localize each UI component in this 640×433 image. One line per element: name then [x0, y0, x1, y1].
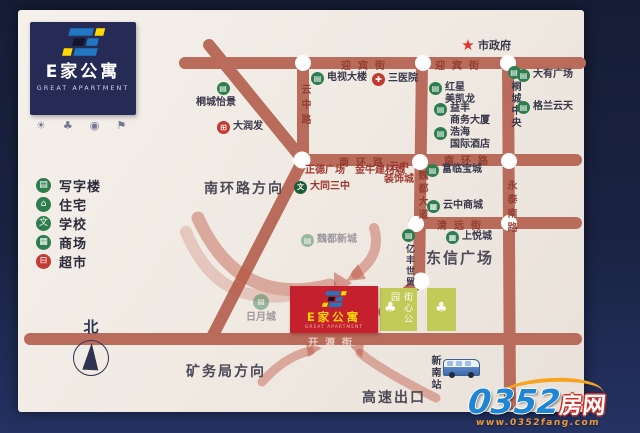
bus-icon — [443, 359, 480, 378]
poi-haohai-intl-hotel: ▤ 浩海 国际酒店 — [434, 127, 490, 151]
road-label-kaiyuan: 开源街 — [308, 334, 359, 349]
poi-gelan-yuntian: ▤ 格兰云天 — [517, 101, 573, 114]
supermarket-icon: ⊟ — [36, 254, 51, 269]
compass-needle-icon — [82, 343, 99, 371]
school-icon: 文 — [294, 181, 307, 194]
road-label-yunzhong: 云中路 — [297, 84, 312, 129]
mall-icon: ▦ — [36, 235, 51, 250]
project-marker-e-apartment: E家公寓 GREAT APARTMENT — [290, 286, 378, 333]
poi-fulin-baocheng: ▤ 富临宝城 — [426, 164, 482, 177]
direction-kuangwuju: 矿务局方向 — [186, 361, 266, 381]
legend-item-residence: ⌂ 住宅 — [36, 195, 101, 214]
poi-riyuecheng: ▤ 日月城 — [246, 294, 276, 324]
direction-nanhuan: 南环路方向 — [204, 178, 284, 198]
poi-yunzhong-decoration-city: 云中 装饰城 — [384, 162, 414, 186]
project-logo-icon — [321, 291, 348, 307]
poi-city-government: ★ 市政府 — [461, 39, 511, 52]
road-label-yingbin-2: 迎宾街 — [435, 57, 486, 72]
road-label-weidu: 魏都大道 — [414, 170, 429, 222]
supermarket-icon: ⊞ — [217, 121, 230, 134]
building-icon: ▤ — [429, 82, 442, 95]
road-label-yingbin-1: 迎宾街 — [341, 57, 392, 72]
star-icon: ★ — [461, 39, 475, 52]
watermark-suffix: 房网 — [558, 393, 607, 419]
legend-item-supermarket: ⊟ 超市 — [36, 252, 101, 271]
road-label-qingyuan: 清远街 — [437, 217, 488, 232]
building-icon: ▤ — [434, 103, 447, 116]
road-label-yongtai: 永泰南路 — [503, 180, 518, 236]
poi-tongcheng-yijing: ▤ 桐城怡景 — [196, 82, 236, 109]
feature-icons-row: ☀ ♣ ◉ ⚑ — [36, 119, 126, 132]
hospital-cross-icon: ✚ — [372, 73, 385, 86]
tree-icon: ♣ — [435, 300, 448, 316]
poi-yifeng-business-tower: ▤ 益丰 商务大厦 — [434, 103, 490, 127]
scenic-icon: ☀ — [36, 119, 46, 132]
park-block-west: ♣ 街心公园 — [380, 288, 417, 331]
building-icon: ▤ — [217, 82, 230, 95]
watermark-0352fang: 0352房网 www.0352fang.com — [465, 378, 640, 430]
school-icon: 文 — [36, 216, 51, 231]
brand-name-en: GREAT APARTMENT — [37, 84, 130, 92]
project-subtitle: GREAT APARTMENT — [305, 325, 363, 330]
poi-rt-mart: ⊞ 大润发 — [217, 121, 263, 134]
flag-icon: ⚑ — [116, 119, 126, 132]
poi-third-hospital: ✚ 三医院 — [372, 73, 418, 86]
park-block-east: ♣ — [427, 288, 456, 331]
legend-item-mall: ▦ 商场 — [36, 233, 101, 252]
watermark-url: www.0352fang.com — [475, 418, 600, 428]
office-icon: ▤ — [36, 178, 51, 193]
building-icon: ▤ — [402, 229, 415, 242]
poi-dayou-plaza: ▤ 大有广场 — [517, 69, 573, 82]
direction-gaosu: 高速出口 — [362, 387, 426, 407]
project-title: E家公寓 — [307, 309, 361, 325]
map-legend: ▤ 写字楼 ⌂ 住宅 文 学校 ▦ 商场 ⊟ 超市 — [36, 176, 101, 271]
compass: 北 — [68, 316, 114, 376]
poi-shangyuecheng: ▦ 上悦城 — [446, 231, 492, 244]
poi-dongxin-plaza: 东信广场 — [426, 247, 494, 268]
compass-north-label: 北 — [68, 316, 114, 337]
poi-yifeng-shimao: ▤ 亿丰世贸 — [387, 229, 430, 288]
building-icon: ▤ — [517, 101, 530, 114]
brand-logo-panel: E家公寓 GREAT APARTMENT — [30, 22, 136, 115]
building-icon: ▤ — [434, 127, 447, 140]
residence-icon: ⌂ — [36, 197, 51, 212]
legend-item-office: ▤ 写字楼 — [36, 176, 101, 195]
building-icon: ▤ — [517, 69, 530, 82]
compass-ring — [73, 340, 109, 376]
mall-icon: ▦ — [427, 200, 440, 213]
building-icon: ▤ — [311, 72, 324, 85]
building-icon: ▤ — [301, 234, 314, 247]
watermark-number: 0352 — [466, 382, 562, 421]
brand-name-cn: E家公寓 — [46, 57, 121, 82]
poi-tv-building: ▤ 电视大楼 — [311, 72, 367, 85]
tree-icon: ♣ — [63, 119, 73, 132]
building-icon: ▤ — [426, 164, 439, 177]
poi-datong-no3-middle-school: 文 大同三中 — [294, 181, 350, 194]
poi-yunzhong-mall: ▦ 云中商城 — [427, 200, 483, 213]
poi-weidu-new-town: ▤ 魏都新城 — [301, 234, 357, 247]
badge-icon: ◉ — [90, 119, 100, 132]
park-label: 街心公园 — [388, 292, 414, 331]
brand-logo-icon — [60, 28, 107, 56]
legend-item-school: 文 学校 — [36, 214, 101, 233]
mall-icon: ▦ — [446, 231, 459, 244]
building-icon: ▤ — [253, 294, 269, 310]
